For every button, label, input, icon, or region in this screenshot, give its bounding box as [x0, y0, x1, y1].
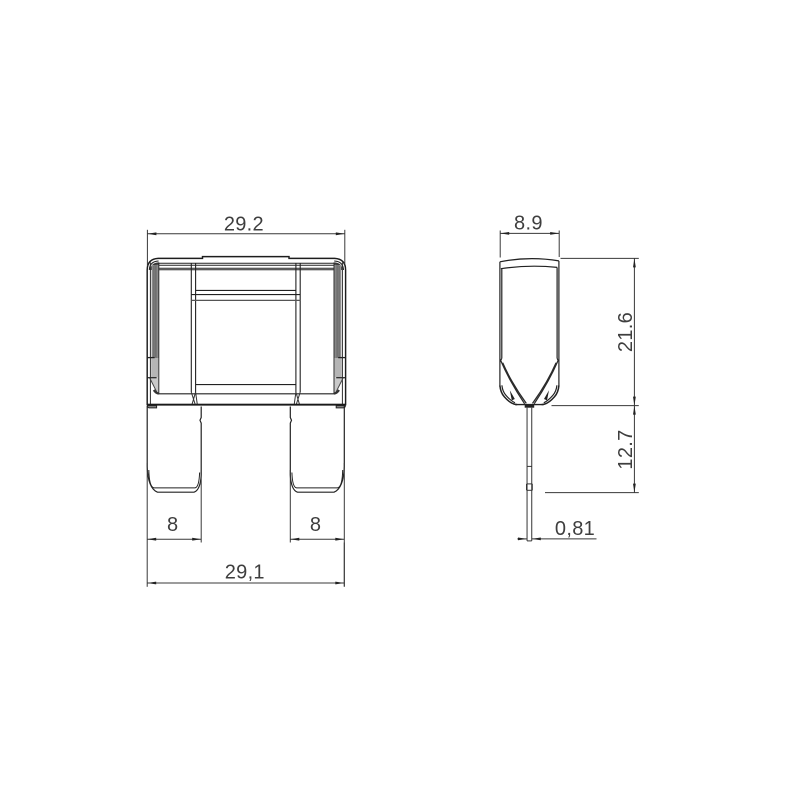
svg-text:8: 8	[167, 514, 178, 536]
svg-text:0,81: 0,81	[555, 518, 595, 540]
svg-text:21.6: 21.6	[615, 312, 637, 352]
svg-text:29,1: 29,1	[225, 562, 265, 584]
svg-text:8: 8	[310, 514, 321, 536]
svg-text:12.7: 12.7	[615, 429, 637, 469]
svg-text:29.2: 29.2	[224, 214, 264, 236]
svg-text:8.9: 8.9	[514, 212, 543, 234]
